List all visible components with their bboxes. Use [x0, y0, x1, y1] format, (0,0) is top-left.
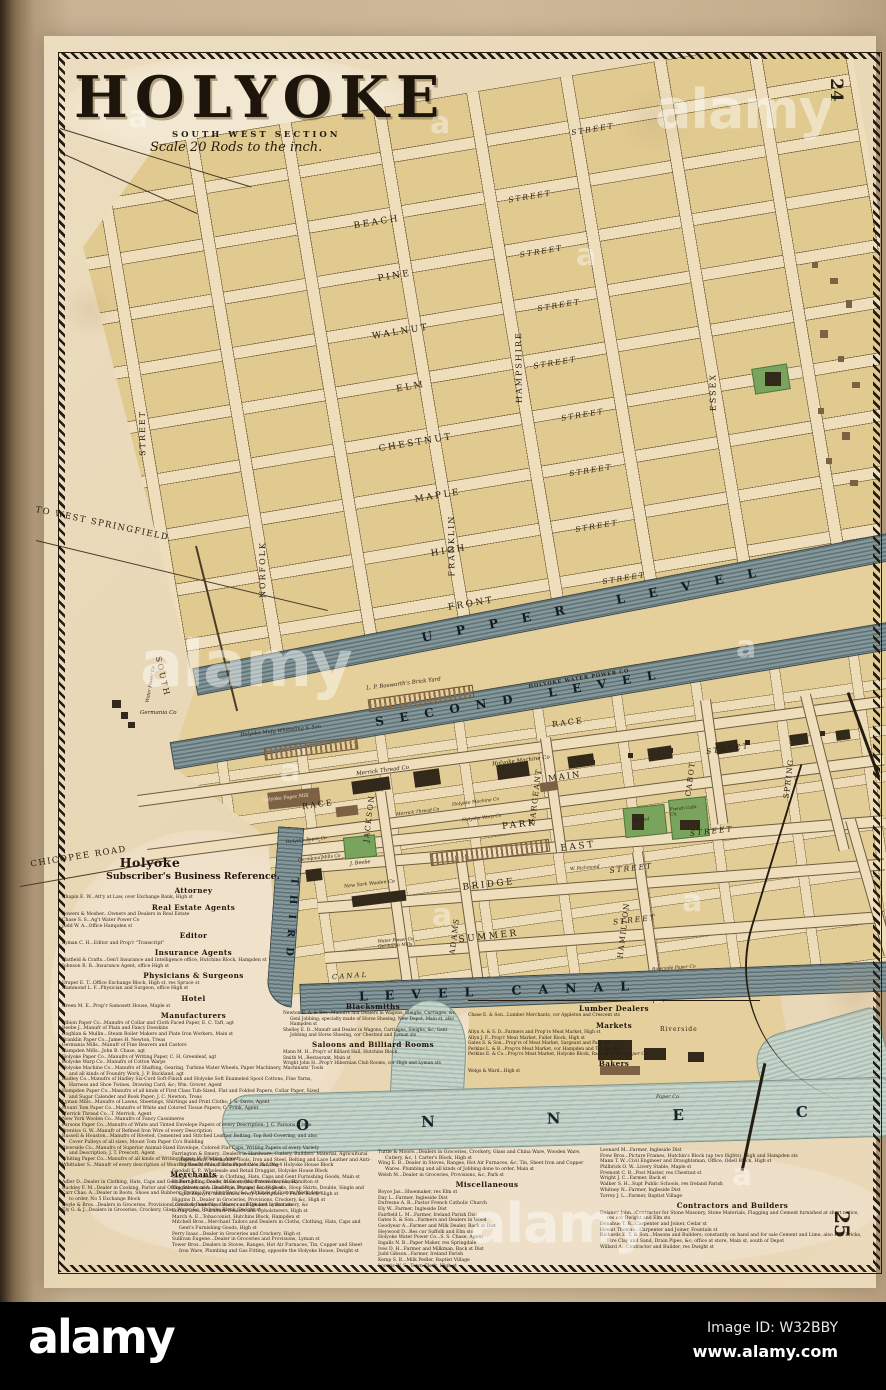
border-ornament-top: [58, 52, 880, 59]
border-ornament-left: [58, 52, 65, 1272]
alamy-footer-bar: alamy Image ID: W32BBY www.alamy.com: [0, 1302, 886, 1390]
image-id-label: Image ID: W32BBY: [707, 1320, 838, 1336]
age-spot: [820, 960, 886, 1030]
alamy-logo[interactable]: alamy: [28, 1310, 174, 1364]
border-ornament-bottom: [58, 1265, 880, 1272]
page-number-bottom: 25: [830, 1210, 854, 1238]
border-ornament-right: [873, 52, 880, 1272]
map-border-frame: [58, 52, 882, 1274]
age-spot: [60, 280, 120, 340]
page-number-top: 24: [826, 78, 846, 102]
age-spot: [610, 90, 700, 150]
alamy-url[interactable]: www.alamy.com: [693, 1342, 838, 1361]
